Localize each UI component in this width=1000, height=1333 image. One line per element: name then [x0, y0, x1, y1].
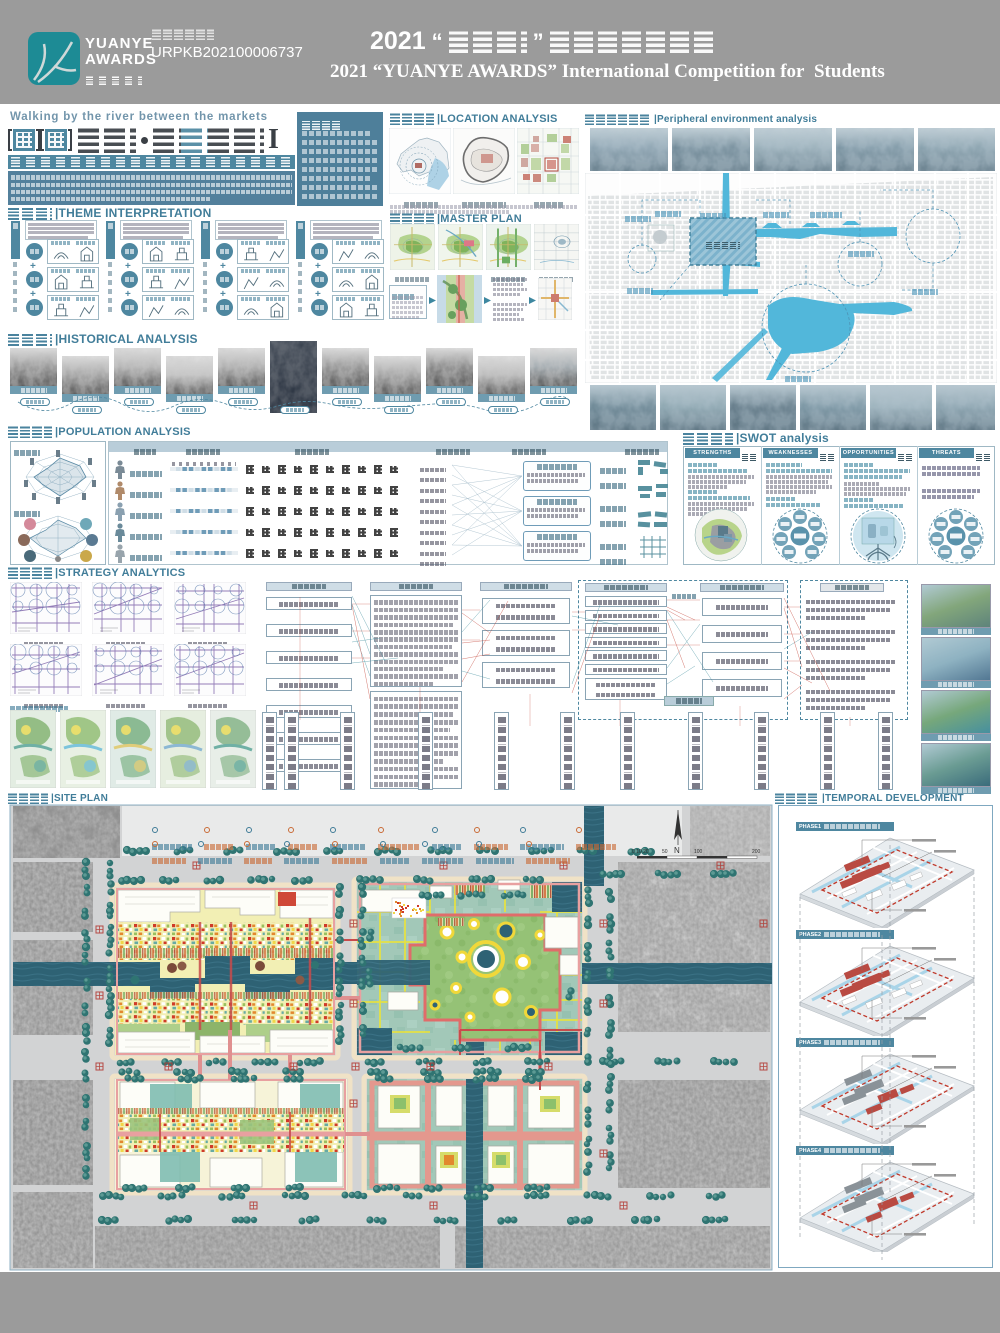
svg-text:200: 200: [752, 849, 761, 855]
svg-text:100: 100: [694, 849, 703, 855]
svg-text:N: N: [674, 846, 680, 855]
svg-text:50: 50: [662, 849, 668, 855]
svg-text:0 10 20: 0 10 20: [632, 849, 649, 855]
